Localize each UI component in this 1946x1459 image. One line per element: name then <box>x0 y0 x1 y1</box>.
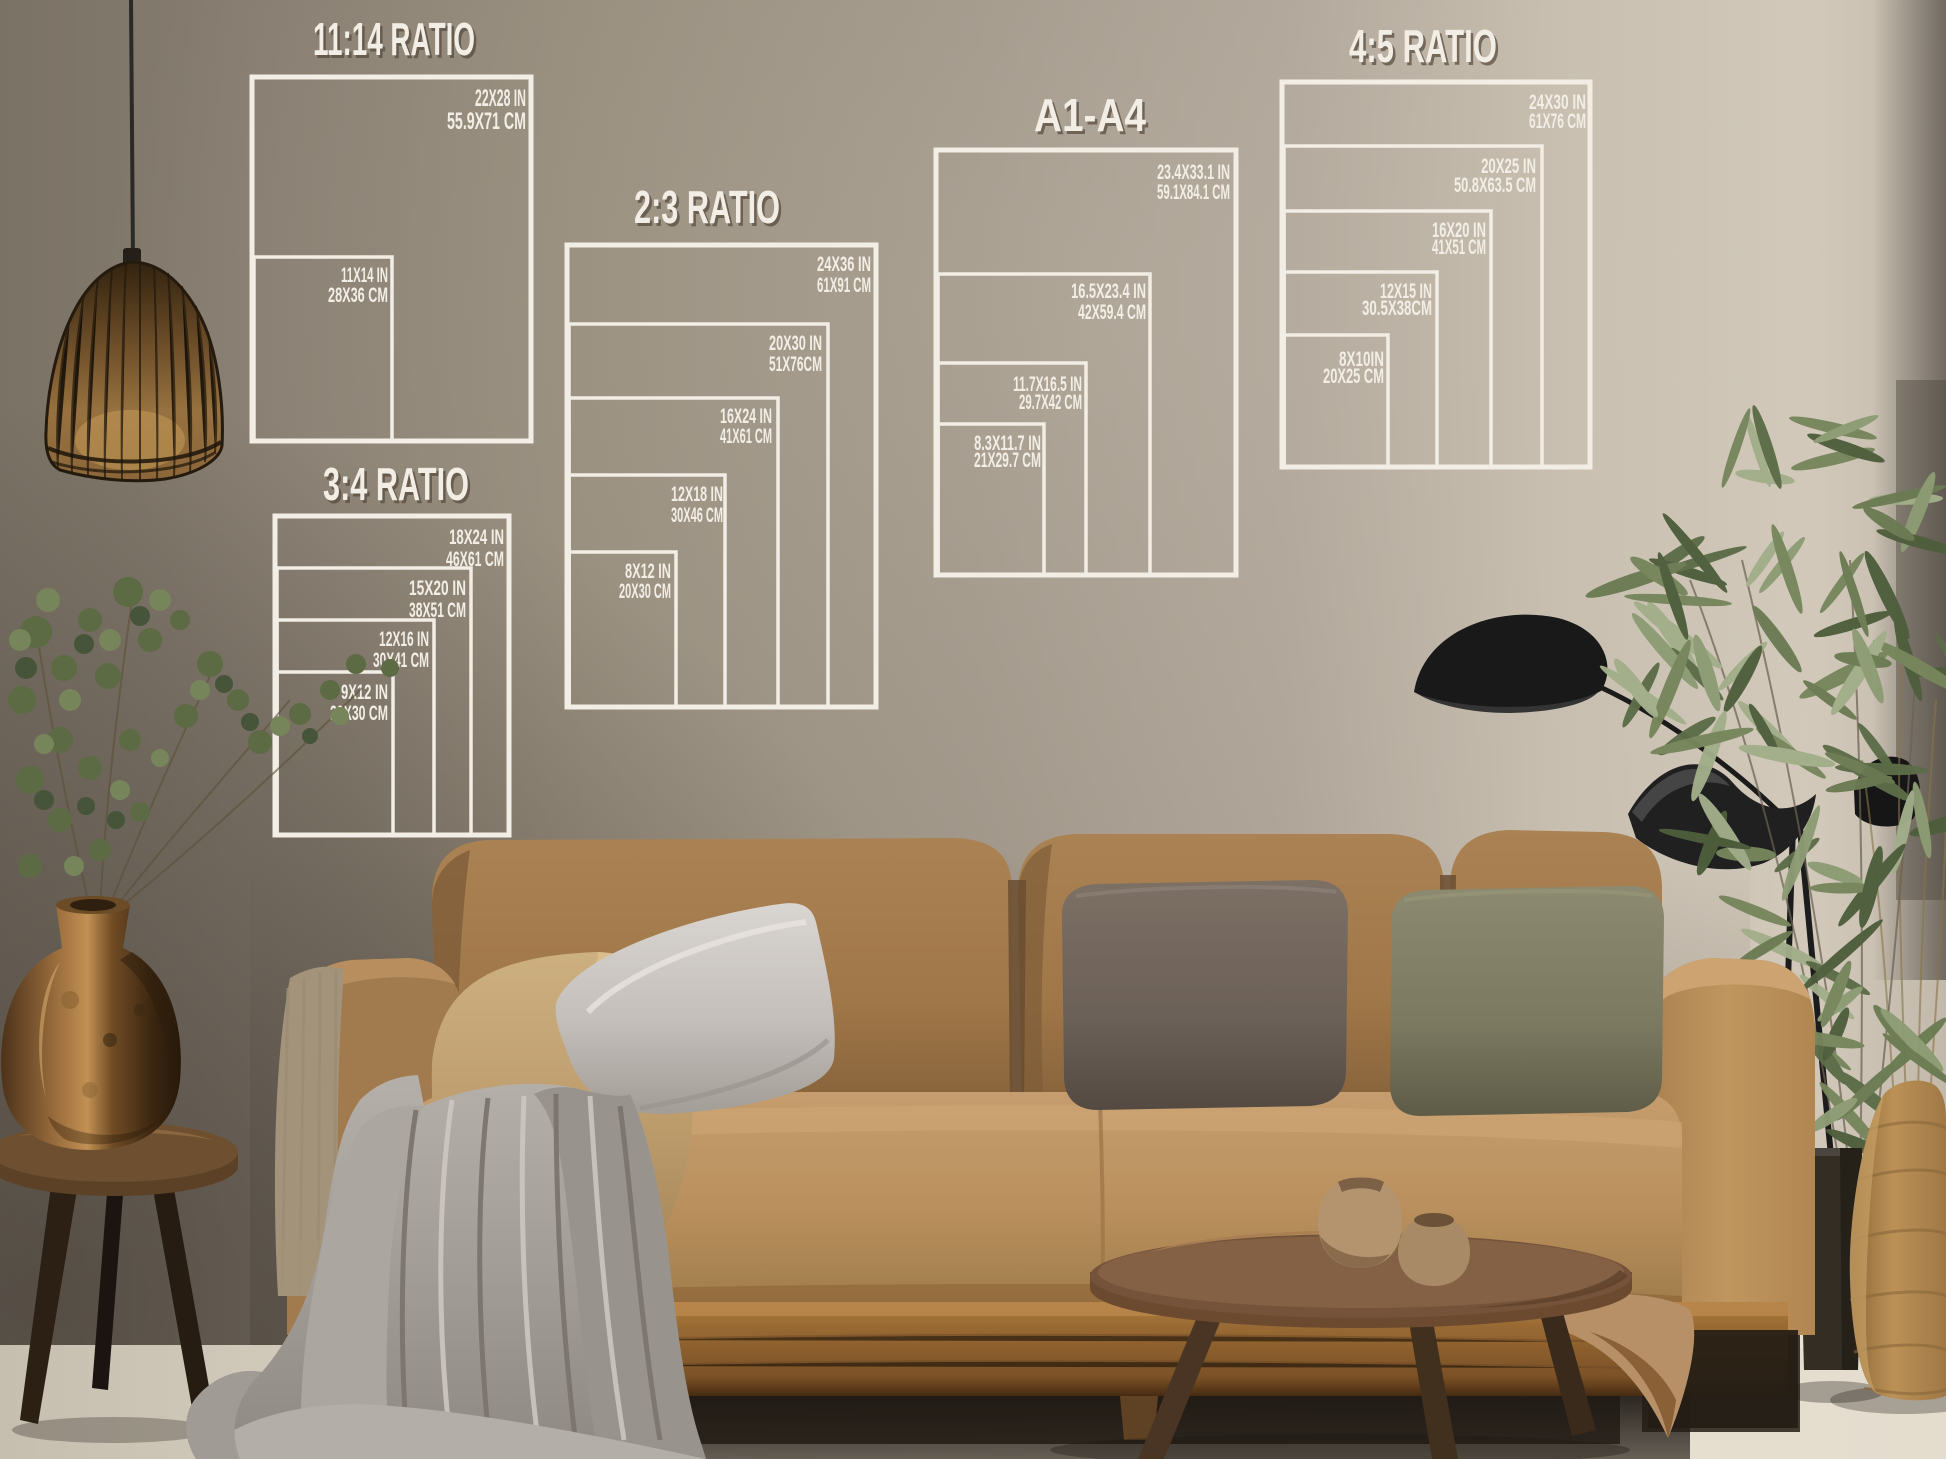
svg-text:29.7X42 CM: 29.7X42 CM <box>1019 390 1082 414</box>
svg-text:20X25 CM: 20X25 CM <box>1323 364 1384 388</box>
svg-text:11:14 RATIO: 11:14 RATIO <box>313 15 475 66</box>
svg-text:38X51 CM: 38X51 CM <box>409 599 466 622</box>
svg-text:12X16 IN: 12X16 IN <box>379 628 429 651</box>
svg-text:51X76CM: 51X76CM <box>769 353 822 376</box>
svg-text:20X30 IN: 20X30 IN <box>769 331 822 355</box>
svg-text:4:5 RATIO: 4:5 RATIO <box>1349 21 1497 73</box>
svg-text:12X18 IN: 12X18 IN <box>671 482 723 506</box>
svg-text:A1-A4: A1-A4 <box>1034 90 1146 142</box>
svg-text:61X76 CM: 61X76 CM <box>1529 110 1586 133</box>
svg-text:61X91 CM: 61X91 CM <box>817 273 871 297</box>
svg-text:50.8X63.5 CM: 50.8X63.5 CM <box>1454 173 1536 197</box>
svg-text:28X36 CM: 28X36 CM <box>328 283 388 307</box>
svg-text:42X59.4 CM: 42X59.4 CM <box>1078 299 1146 323</box>
svg-text:41X61 CM: 41X61 CM <box>720 424 772 448</box>
svg-text:55.9X71 CM: 55.9X71 CM <box>447 108 526 135</box>
svg-text:20X30 CM: 20X30 CM <box>619 579 671 603</box>
svg-text:15X20 IN: 15X20 IN <box>409 576 466 600</box>
svg-text:24X36 IN: 24X36 IN <box>817 252 871 276</box>
svg-text:30.5X38CM: 30.5X38CM <box>1362 296 1432 320</box>
svg-text:21X29.7 CM: 21X29.7 CM <box>974 449 1041 472</box>
svg-text:2:3 RATIO: 2:3 RATIO <box>634 183 780 234</box>
svg-text:18X24 IN: 18X24 IN <box>449 525 504 549</box>
svg-text:41X51 CM: 41X51 CM <box>1432 235 1486 259</box>
svg-text:30X46 CM: 30X46 CM <box>671 503 723 527</box>
svg-text:59.1X84.1 CM: 59.1X84.1 CM <box>1157 180 1230 204</box>
svg-text:3:4 RATIO: 3:4 RATIO <box>323 460 469 511</box>
svg-text:46X61 CM: 46X61 CM <box>446 546 504 570</box>
